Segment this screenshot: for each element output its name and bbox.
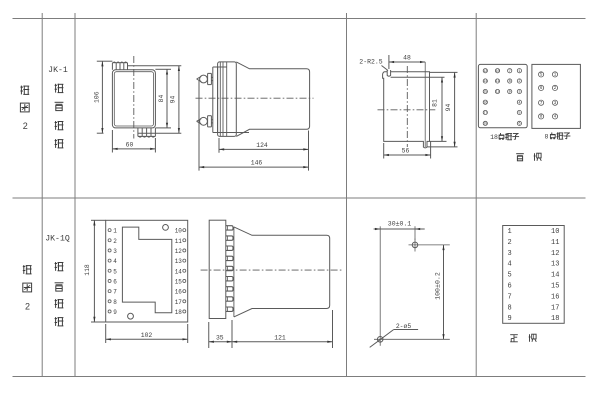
svg-text:84: 84: [158, 95, 165, 103]
svg-text:94: 94: [445, 104, 452, 112]
svg-text:11: 11: [551, 239, 559, 247]
svg-text:8: 8: [509, 80, 511, 84]
svg-text:13: 13: [483, 70, 487, 74]
svg-text:35: 35: [216, 334, 224, 341]
svg-text:48: 48: [403, 55, 411, 62]
svg-text:12: 12: [551, 250, 559, 258]
svg-text:JK-1: JK-1: [48, 66, 68, 75]
svg-text:9: 9: [113, 309, 117, 316]
svg-text:3: 3: [518, 91, 520, 95]
svg-text:3: 3: [113, 248, 117, 255]
svg-text:18: 18: [175, 309, 183, 316]
svg-text:2: 2: [25, 301, 30, 311]
svg-text:106: 106: [93, 91, 100, 103]
svg-text:16: 16: [551, 293, 559, 301]
svg-text:18: 18: [551, 315, 559, 323]
svg-text:18: 18: [490, 134, 498, 141]
svg-text:14: 14: [175, 268, 183, 275]
svg-text:5: 5: [518, 112, 520, 116]
svg-text:1: 1: [508, 228, 512, 236]
svg-text:13: 13: [551, 261, 559, 269]
svg-text:100±0.2: 100±0.2: [435, 272, 442, 300]
svg-text:8: 8: [508, 304, 512, 312]
svg-text:JK-1Q: JK-1Q: [45, 235, 70, 244]
svg-text:118: 118: [84, 264, 91, 276]
svg-text:7: 7: [509, 70, 511, 74]
svg-text:4: 4: [113, 258, 117, 265]
svg-text:1: 1: [518, 70, 520, 74]
svg-text:2: 2: [518, 80, 520, 84]
svg-text:14: 14: [551, 272, 559, 280]
svg-text:94: 94: [170, 96, 177, 104]
svg-text:6: 6: [518, 123, 520, 127]
svg-text:12: 12: [175, 248, 183, 255]
svg-text:124: 124: [256, 142, 268, 149]
svg-text:30±0.1: 30±0.1: [388, 220, 412, 227]
svg-text:102: 102: [141, 332, 153, 339]
svg-text:60: 60: [126, 142, 134, 149]
svg-text:17: 17: [551, 304, 559, 312]
svg-text:10: 10: [175, 228, 183, 235]
svg-text:2: 2: [113, 238, 117, 245]
svg-text:6: 6: [508, 283, 512, 291]
svg-text:17: 17: [175, 299, 183, 306]
svg-text:5: 5: [508, 272, 512, 280]
svg-text:8: 8: [545, 134, 549, 141]
svg-text:17: 17: [483, 112, 487, 116]
svg-text:10: 10: [495, 70, 499, 74]
svg-text:11: 11: [495, 80, 499, 84]
svg-text:1: 1: [113, 228, 117, 235]
svg-text:15: 15: [175, 278, 183, 285]
svg-text:16: 16: [175, 289, 183, 296]
svg-text:15: 15: [551, 283, 559, 291]
svg-text:15: 15: [483, 91, 487, 95]
svg-text:14: 14: [483, 80, 487, 84]
svg-text:2-R2.5: 2-R2.5: [359, 59, 383, 66]
svg-text:56: 56: [402, 148, 410, 155]
svg-text:18: 18: [483, 123, 487, 127]
svg-text:121: 121: [274, 334, 286, 341]
svg-text:4: 4: [518, 101, 520, 105]
svg-text:6: 6: [113, 278, 117, 285]
svg-text:7: 7: [113, 289, 117, 296]
svg-text:11: 11: [175, 238, 183, 245]
svg-text:8: 8: [113, 299, 117, 306]
svg-text:16: 16: [483, 101, 487, 105]
svg-text:7: 7: [508, 293, 512, 301]
svg-text:2: 2: [508, 239, 512, 247]
svg-text:13: 13: [175, 258, 183, 265]
svg-text:12: 12: [495, 91, 499, 95]
svg-text:9: 9: [508, 315, 512, 323]
svg-text:2-ø5: 2-ø5: [396, 323, 412, 330]
svg-text:81: 81: [432, 99, 439, 107]
svg-text:5: 5: [113, 268, 117, 275]
svg-text:9: 9: [509, 91, 511, 95]
svg-text:146: 146: [251, 160, 263, 167]
svg-text:10: 10: [551, 228, 559, 236]
svg-text:2: 2: [23, 121, 28, 131]
svg-text:4: 4: [508, 261, 512, 269]
svg-text:3: 3: [508, 250, 512, 258]
